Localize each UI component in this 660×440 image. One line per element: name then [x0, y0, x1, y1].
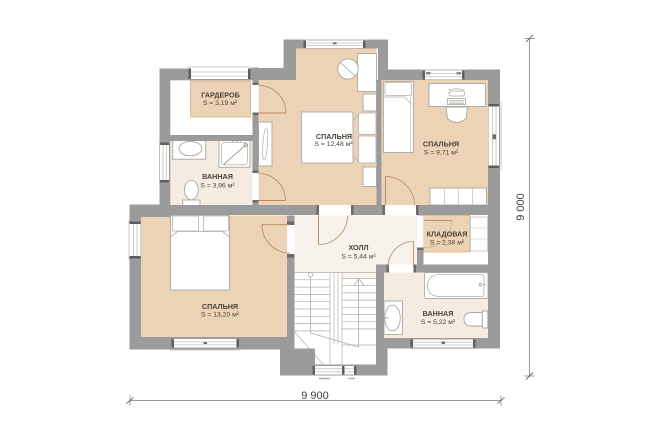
svg-text:ВАННАЯ: ВАННАЯ — [423, 309, 454, 318]
svg-text:S = 3,96 м²: S = 3,96 м² — [200, 183, 235, 190]
svg-text:S = 13,20 м²: S = 13,20 м² — [201, 311, 240, 318]
svg-text:ХОЛЛ: ХОЛЛ — [348, 243, 368, 252]
svg-text:9 900: 9 900 — [301, 390, 329, 402]
svg-text:S = 9,71 м²: S = 9,71 м² — [424, 150, 459, 157]
svg-text:СПАЛЬНЯ: СПАЛЬНЯ — [316, 132, 352, 141]
svg-text:СПАЛЬНЯ: СПАЛЬНЯ — [202, 302, 238, 311]
svg-text:СПАЛЬНЯ: СПАЛЬНЯ — [423, 140, 459, 149]
svg-text:S = 5,22 м²: S = 5,22 м² — [421, 319, 456, 326]
svg-text:S = 2,38 м²: S = 2,38 м² — [430, 239, 465, 246]
svg-text:S = 5,44 м²: S = 5,44 м² — [341, 253, 376, 260]
svg-text:S = 12,48 м²: S = 12,48 м² — [314, 141, 353, 148]
svg-text:КЛАДОВАЯ: КЛАДОВАЯ — [427, 230, 468, 239]
svg-text:ГАРДЕРОБ: ГАРДЕРОБ — [201, 91, 240, 100]
svg-text:9 000: 9 000 — [515, 193, 527, 221]
svg-text:ВАННАЯ: ВАННАЯ — [202, 172, 233, 181]
svg-text:S = 3,19 м²: S = 3,19 м² — [203, 100, 238, 107]
